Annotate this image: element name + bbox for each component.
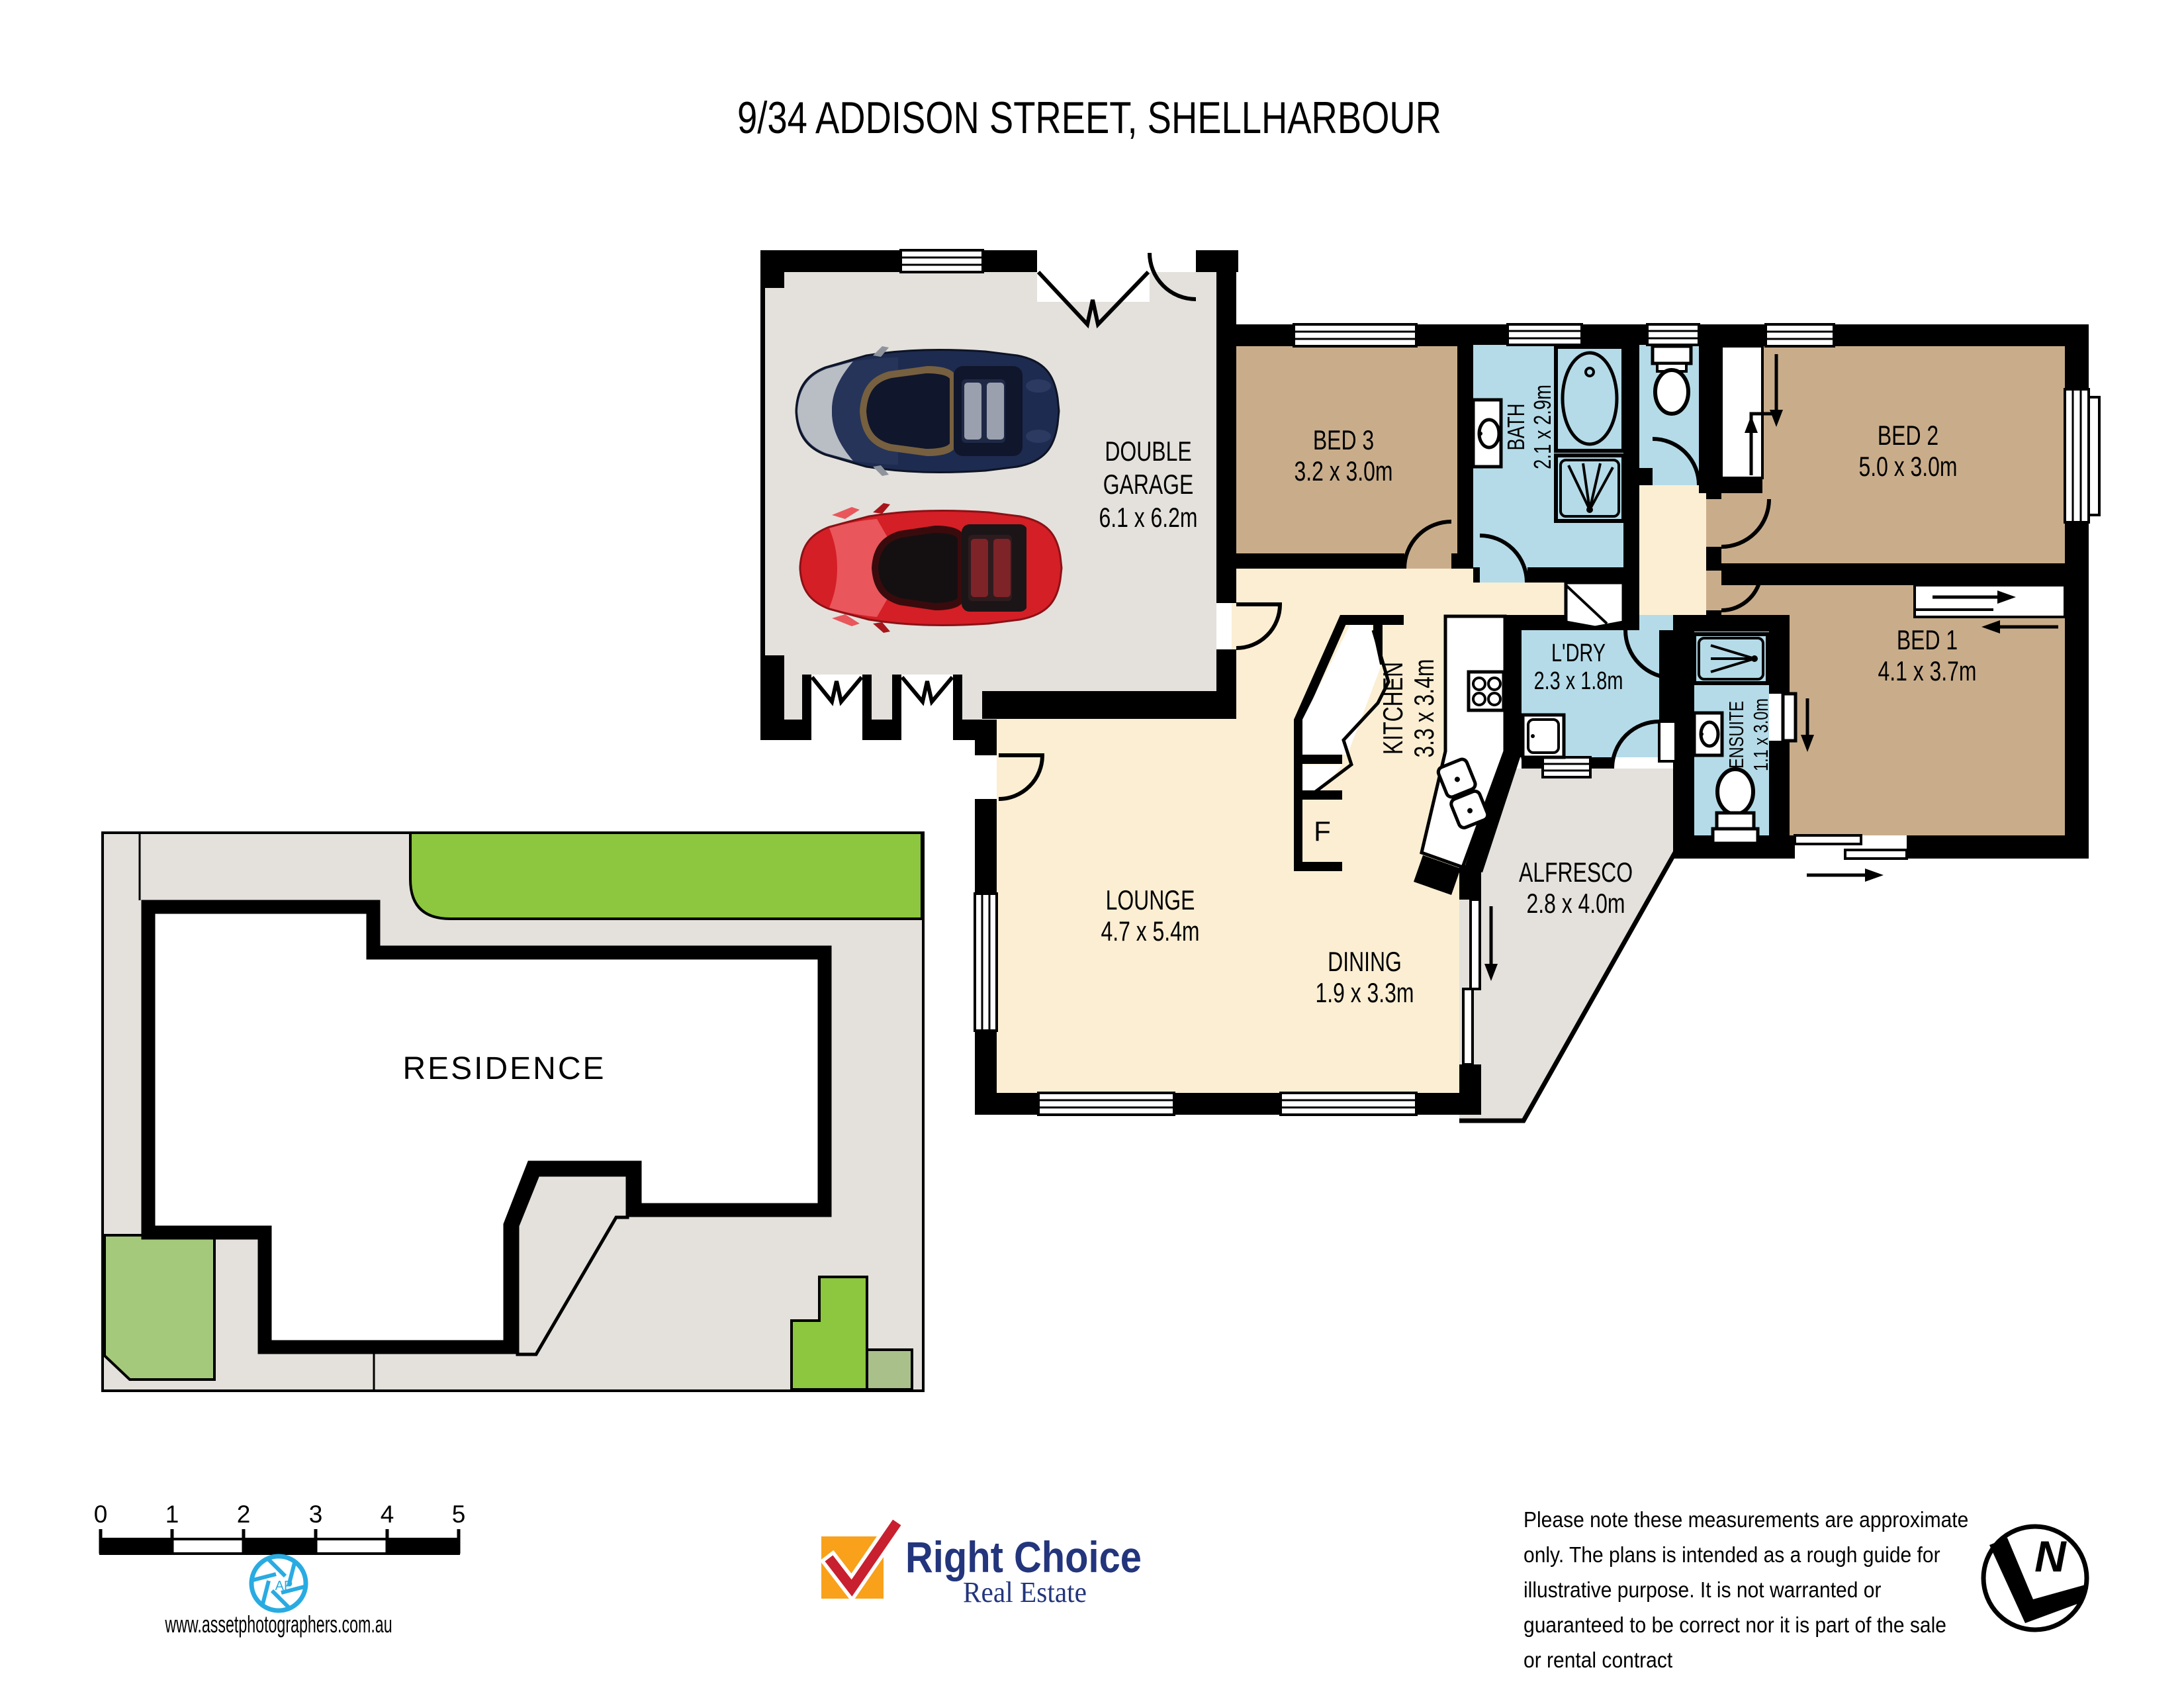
svg-text:3.3 x 3.4m: 3.3 x 3.4m bbox=[1408, 659, 1439, 757]
svg-text:www.assetphotographers.com.au: www.assetphotographers.com.au bbox=[165, 1612, 392, 1638]
svg-text:Please note these measurements: Please note these measurements are appro… bbox=[1524, 1507, 1968, 1532]
svg-text:L'DRY: L'DRY bbox=[1551, 639, 1606, 667]
svg-text:0: 0 bbox=[94, 1501, 108, 1528]
svg-text:ENSUITE: ENSUITE bbox=[1725, 701, 1748, 769]
svg-text:5.0 x 3.0m: 5.0 x 3.0m bbox=[1858, 451, 1957, 482]
svg-text:DOUBLE: DOUBLE bbox=[1105, 436, 1191, 467]
svg-text:Right Choice: Right Choice bbox=[905, 1532, 1142, 1581]
svg-text:BATH: BATH bbox=[1502, 404, 1529, 451]
svg-text:N: N bbox=[2034, 1532, 2067, 1581]
svg-text:9/34 ADDISON STREET, SHELLHARB: 9/34 ADDISON STREET, SHELLHARBOUR bbox=[737, 93, 1441, 143]
svg-text:1: 1 bbox=[165, 1501, 179, 1528]
svg-text:1.9 x 3.3m: 1.9 x 3.3m bbox=[1315, 977, 1414, 1008]
svg-text:GARAGE: GARAGE bbox=[1103, 469, 1194, 500]
svg-text:BED 1: BED 1 bbox=[1897, 624, 1958, 655]
svg-text:LOUNGE: LOUNGE bbox=[1106, 884, 1195, 915]
svg-text:2.1 x 2.9m: 2.1 x 2.9m bbox=[1529, 385, 1556, 469]
svg-text:AP: AP bbox=[275, 1579, 293, 1593]
svg-text:3.2 x 3.0m: 3.2 x 3.0m bbox=[1294, 455, 1392, 487]
svg-text:BED 3: BED 3 bbox=[1313, 424, 1374, 455]
svg-text:2.8 x 4.0m: 2.8 x 4.0m bbox=[1526, 888, 1625, 919]
svg-text:6.1 x 6.2m: 6.1 x 6.2m bbox=[1099, 502, 1197, 533]
svg-text:F: F bbox=[1314, 816, 1331, 847]
svg-text:guaranteed to be correct nor i: guaranteed to be correct nor it is part … bbox=[1524, 1613, 1946, 1638]
svg-text:4.1 x 3.7m: 4.1 x 3.7m bbox=[1878, 655, 1976, 686]
svg-text:2.3 x 1.8m: 2.3 x 1.8m bbox=[1534, 667, 1623, 695]
svg-text:5: 5 bbox=[452, 1501, 466, 1528]
svg-text:Real Estate: Real Estate bbox=[963, 1576, 1087, 1609]
svg-text:2: 2 bbox=[237, 1501, 251, 1528]
svg-text:illustrative purpose. It is no: illustrative purpose. It is not warrante… bbox=[1524, 1577, 1881, 1603]
svg-text:4: 4 bbox=[381, 1501, 394, 1528]
svg-text:or rental contract: or rental contract bbox=[1524, 1648, 1672, 1673]
svg-text:RESIDENCE: RESIDENCE bbox=[402, 1051, 606, 1086]
svg-text:KITCHEN: KITCHEN bbox=[1377, 662, 1408, 755]
svg-text:1.1 x 3.0m: 1.1 x 3.0m bbox=[1749, 698, 1772, 771]
svg-text:ALFRESCO: ALFRESCO bbox=[1519, 857, 1633, 888]
svg-text:DINING: DINING bbox=[1328, 946, 1402, 977]
svg-text:BED 2: BED 2 bbox=[1878, 420, 1938, 451]
svg-text:only. The plans is intended as: only. The plans is intended as a rough g… bbox=[1524, 1542, 1940, 1568]
svg-text:4.7 x 5.4m: 4.7 x 5.4m bbox=[1101, 915, 1199, 947]
svg-text:3: 3 bbox=[309, 1501, 323, 1528]
